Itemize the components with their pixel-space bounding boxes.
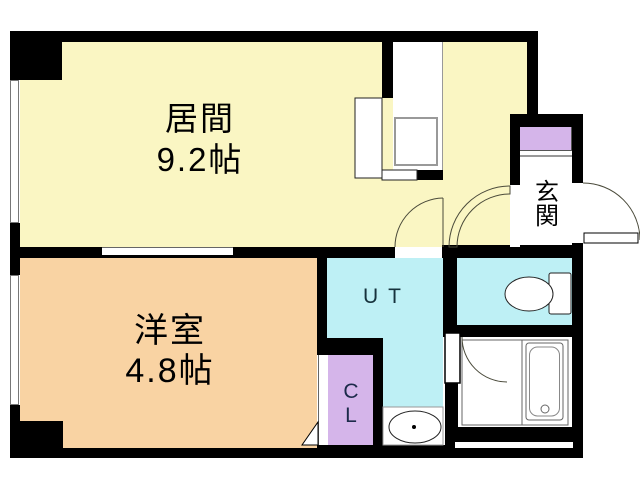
kitchen-sink-icon xyxy=(395,118,437,165)
western-room-label: 洋室 4.8帖 xyxy=(65,311,275,391)
utility-label-text: UT xyxy=(363,285,411,308)
closet-door-triangle xyxy=(302,422,318,445)
washbasin-drain-icon xyxy=(412,425,416,429)
entrance-label: 玄 関 xyxy=(531,181,563,229)
hall-door-arc xyxy=(449,186,510,247)
entrance-label-char2: 関 xyxy=(531,205,563,229)
living-room-name: 居間 xyxy=(95,98,305,139)
kitchen-cabinet-icon xyxy=(355,98,382,178)
fixtures-layer xyxy=(0,0,640,480)
bath-door-arc xyxy=(462,337,507,382)
front-door-panel xyxy=(584,233,638,243)
front-door-arc xyxy=(583,183,640,240)
living-room-size: 9.2帖 xyxy=(95,139,305,180)
utility-label: UT xyxy=(352,286,422,308)
western-room-size: 4.8帖 xyxy=(65,351,275,391)
kitchen-counter-end-icon xyxy=(382,170,417,180)
toilet-bowl-icon xyxy=(505,277,553,311)
western-room-name: 洋室 xyxy=(65,311,275,351)
bath-door-panel xyxy=(445,333,460,383)
closet-label: C L xyxy=(337,380,365,428)
entrance-label-char1: 玄 xyxy=(531,181,563,205)
floor-plan: 居間 9.2帖 洋室 4.8帖 UT C L 玄 関 xyxy=(0,0,640,480)
living-room-label: 居間 9.2帖 xyxy=(95,98,305,180)
bathtub-drain-icon xyxy=(541,405,549,413)
closet-label-l: L xyxy=(337,404,365,428)
closet-label-c: C xyxy=(337,380,365,404)
utility-door-arc xyxy=(395,198,443,247)
